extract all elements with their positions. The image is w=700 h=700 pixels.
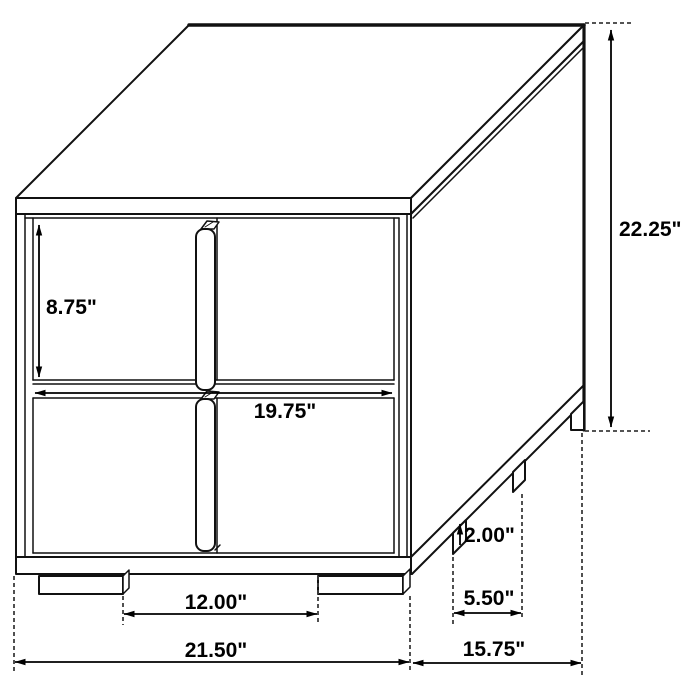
dim-label-drawer-height: 8.75" (46, 296, 97, 319)
dim-label-leg-height: 2.00" (464, 524, 515, 547)
nightstand-dimension-diagram: 8.75" 19.75" 22.25" 2.00" 5.50" 12.00" 2… (0, 0, 700, 700)
diagram-canvas: 8.75" 19.75" 22.25" 2.00" 5.50" 12.00" 2… (0, 0, 700, 700)
dim-label-drawer-width: 19.75" (254, 400, 317, 423)
side-middle-leg (513, 460, 525, 492)
dim-label-overall-depth: 15.75" (463, 638, 526, 661)
dimension-leg-height: 2.00" (460, 524, 515, 547)
side-back-leg (571, 401, 584, 430)
dim-label-overall-width: 21.50" (185, 639, 248, 662)
top-band-front (16, 198, 411, 214)
dimension-overall-depth: 15.75" (413, 638, 581, 663)
dimension-overall-width: 21.50" (15, 639, 409, 662)
top-drawer-handle (196, 221, 219, 390)
dimension-side-leg-spacing: 5.50" (454, 587, 521, 613)
nightstand-drawing (16, 25, 584, 594)
dimension-front-leg-spacing: 12.00" (124, 591, 317, 614)
front-plinth (16, 557, 411, 574)
dimension-overall-height: 22.25" (611, 30, 682, 427)
dim-label-front-leg-spacing: 12.00" (185, 591, 248, 614)
dim-label-side-leg-spacing: 5.50" (464, 587, 515, 610)
dim-label-overall-height: 22.25" (619, 218, 682, 241)
